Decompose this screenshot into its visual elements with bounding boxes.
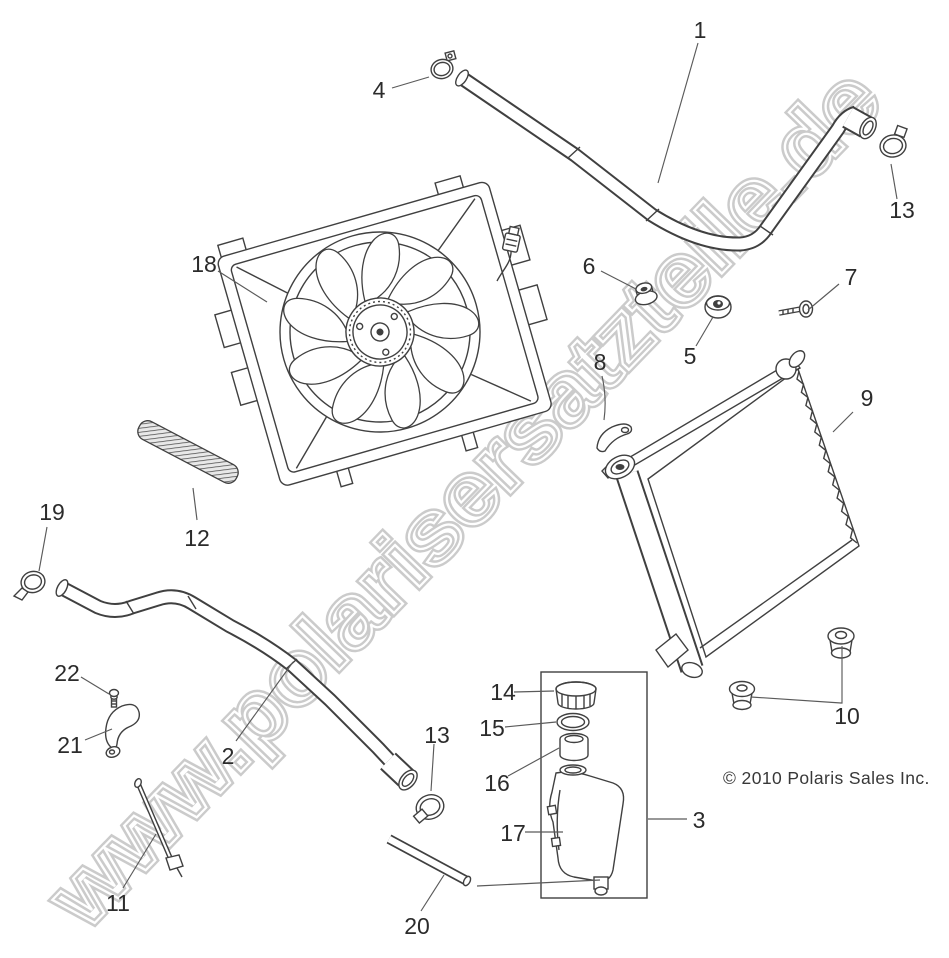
callout-21: 21 xyxy=(57,732,83,758)
coolant-bottle xyxy=(547,765,623,895)
copyright-notice: © 2010 Polaris Sales Inc. xyxy=(723,768,930,788)
screw-22 xyxy=(110,690,119,708)
parts-diagram-page: www.polarisersatzteile.de www.polarisers… xyxy=(0,0,949,958)
callout-20: 20 xyxy=(404,913,430,939)
o-ring xyxy=(557,714,589,731)
coolant-bottle-assembly xyxy=(541,672,647,898)
bolt xyxy=(779,301,813,317)
grommet-upper xyxy=(828,628,854,658)
callout-12: 12 xyxy=(184,525,210,551)
callout-6: 6 xyxy=(583,253,596,279)
callout-11: 11 xyxy=(106,890,130,916)
leader-9 xyxy=(833,412,853,432)
callout-18: 18 xyxy=(191,251,217,277)
leader-1 xyxy=(658,43,698,183)
callout-3: 3 xyxy=(693,807,706,833)
leader-22 xyxy=(81,677,109,694)
leader-13-mid xyxy=(431,744,434,791)
leader-19 xyxy=(39,527,47,571)
hose-clamp-19 xyxy=(14,569,47,600)
leader-7 xyxy=(808,284,839,310)
callout-13-top: 13 xyxy=(889,197,915,223)
leader-20 xyxy=(421,875,444,911)
leader-10 xyxy=(751,646,842,703)
callout-10: 10 xyxy=(834,703,860,729)
hose-clamp-4 xyxy=(429,51,456,81)
callout-17: 17 xyxy=(500,820,526,846)
grommet-lower xyxy=(730,682,755,710)
callout-19: 19 xyxy=(39,499,65,525)
callout-4: 4 xyxy=(373,77,386,103)
overflow-tube xyxy=(389,839,472,887)
callout-15: 15 xyxy=(479,715,505,741)
bottle-cap xyxy=(556,682,596,709)
leader-12 xyxy=(193,488,197,520)
cooling-system-exploded-diagram: www.polarisersatzteile.de www.polarisers… xyxy=(0,0,949,958)
leader-4 xyxy=(392,77,429,88)
callout-13-mid: 13 xyxy=(424,722,450,748)
callout-22: 22 xyxy=(54,660,80,686)
leader-14 xyxy=(514,691,554,692)
p-clamp-21 xyxy=(105,704,140,759)
leader-13-top xyxy=(891,164,897,199)
leader-16 xyxy=(508,748,559,776)
foam-seal-strip xyxy=(135,418,242,487)
callout-8: 8 xyxy=(594,349,607,375)
callout-5: 5 xyxy=(684,343,697,369)
radiator xyxy=(601,348,859,680)
well-nut xyxy=(705,296,731,318)
callout-14: 14 xyxy=(490,679,516,705)
filler-bushing xyxy=(560,734,588,761)
leader-15 xyxy=(505,722,556,727)
callout-2: 2 xyxy=(222,743,235,769)
retainer-clip xyxy=(597,424,632,452)
callout-7: 7 xyxy=(845,264,858,290)
hose-clamp-13-mid xyxy=(413,791,448,823)
callout-16: 16 xyxy=(484,770,510,796)
leader-20-to-bottle xyxy=(477,880,600,886)
callout-1: 1 xyxy=(694,17,707,43)
callout-9: 9 xyxy=(861,385,874,411)
